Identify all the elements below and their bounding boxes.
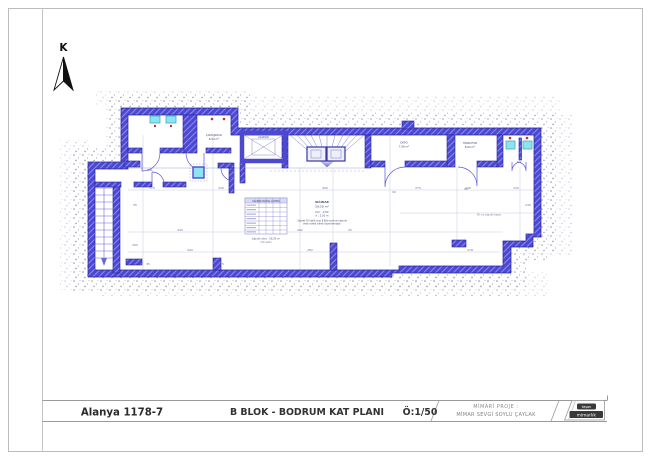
logo-text-bottom: mimarlık	[577, 412, 597, 418]
floor-plan-drawing: SIĞINAK MAHAL LİSTESİ ÇAMAŞIRLIK8,94 m²D…	[0, 0, 651, 460]
plan-text: (50 kişilik)	[260, 241, 271, 244]
plan-text: 230	[513, 186, 519, 190]
area-schedule-table: SIĞINAK MAHAL LİSTESİ	[245, 198, 287, 234]
north-arrow-icon: K	[54, 42, 73, 90]
drawing-title: B BLOK - BODRUM KAT PLANI	[230, 407, 384, 418]
drawing-scale: Ö:1/50	[403, 407, 438, 418]
office-logo-stamp: taşan mimarlık	[565, 401, 605, 421]
plan-text: 7,96 m²	[399, 145, 410, 149]
plan-text: 25	[220, 262, 224, 266]
plan-text: Kot : -2,80	[316, 210, 329, 214]
logo-text-top: taşan	[582, 405, 591, 409]
plan-text: 275	[415, 186, 421, 190]
drawing-sheet: SIĞINAK MAHAL LİSTESİ ÇAMAŞIRLIK8,94 m²D…	[0, 0, 651, 460]
plan-text: 8,60 m²	[465, 145, 476, 149]
plan-text: 218	[467, 248, 473, 252]
plan-text: 282	[307, 248, 313, 252]
plan-text: 440	[187, 248, 193, 252]
architect-heading: MİMARİ PROJE :	[473, 403, 518, 410]
plan-text: 490	[322, 186, 328, 190]
title-block: Alanya 1178-7 B BLOK - BODRUM KAT PLANI …	[43, 396, 608, 422]
plan-text: 305	[132, 243, 138, 247]
project-code: Alanya 1178-7	[81, 408, 163, 419]
plan-text: 90 cm sığınak kapısı	[477, 214, 502, 217]
plan-text: 440	[177, 228, 183, 232]
plan-text: 170	[149, 186, 155, 190]
plan-text: h : 2,20 m	[316, 214, 329, 218]
plan-text: 25	[348, 228, 352, 232]
plan-text: 8,94 m²	[209, 137, 220, 141]
north-label: K	[59, 42, 68, 54]
plan-text: HOL	[147, 168, 153, 172]
plan-text: 245	[218, 186, 224, 190]
schedule-caption: SIĞINAK MAHAL LİSTESİ	[252, 200, 280, 203]
plan-text: 90	[464, 187, 468, 191]
plan-text: SIĞINAK	[315, 199, 330, 204]
plan-text: 282	[297, 228, 303, 232]
plan-text: 58,28 m²	[315, 205, 329, 209]
plan-text: ortak mahal olarak düzenlenmiştir.	[303, 223, 341, 226]
plan-text: ASANSÖR	[258, 136, 269, 139]
plan-text: 90	[392, 190, 396, 194]
plan-text: 35	[146, 262, 150, 266]
plan-text: 230	[525, 203, 531, 207]
plan-text: 95	[133, 203, 137, 207]
architect-name: MİMAR SEVGİ SOYLU ÇAYLAK	[456, 411, 536, 418]
